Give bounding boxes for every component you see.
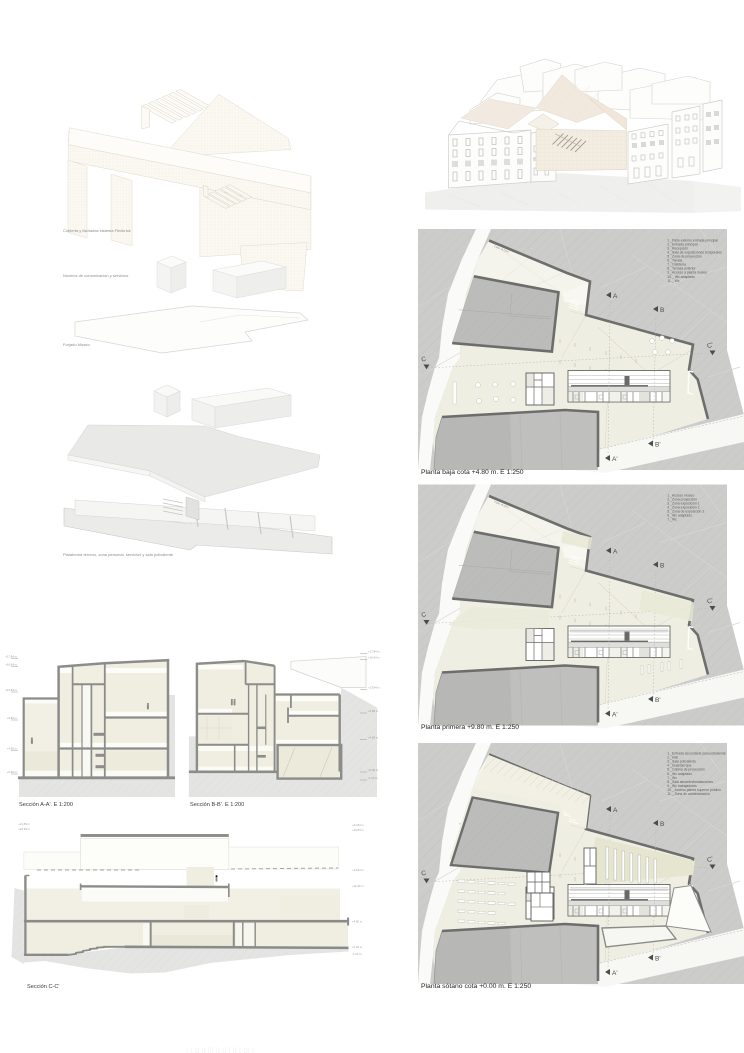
svg-text:Sección A-A'. E 1:200: Sección A-A'. E 1:200 — [19, 802, 73, 808]
svg-text:+4.80 m: +4.80 m — [352, 920, 363, 924]
svg-text:+20.84 m: +20.84 m — [352, 828, 364, 832]
svg-text:Planta baja cota +4.80 m. E 1:: Planta baja cota +4.80 m. E 1:250 — [421, 469, 524, 476]
svg-text:Núcleos de comunicación y serv: Núcleos de comunicación y servicios — [63, 273, 128, 278]
svg-text:+13.84 m: +13.84 m — [352, 868, 364, 872]
svg-text:+4.80 m: +4.80 m — [7, 747, 18, 751]
svg-text:11._ Wc: 11._ Wc — [667, 279, 679, 283]
svg-text:+11.80 m: +11.80 m — [352, 884, 364, 888]
svg-text:Planta sótano cota +0.00 m. E: Planta sótano cota +0.00 m. E 1:250 — [421, 983, 531, 990]
svg-text:+13.84 m: +13.84 m — [368, 686, 380, 690]
svg-text:Sección C-C': Sección C-C' — [27, 984, 59, 990]
svg-text:Planta primera +9.80 m. E 1:25: Planta primera +9.80 m. E 1:250 — [421, 724, 519, 731]
svg-text:-1.00 m: -1.00 m — [368, 776, 378, 780]
svg-text:+9.80 m: +9.80 m — [368, 709, 379, 713]
svg-text:+16.64 m: +16.64 m — [5, 663, 17, 667]
svg-text:+17.84 m: +17.84 m — [368, 650, 380, 654]
svg-text:+4.80 m: +4.80 m — [368, 736, 379, 740]
svg-text:7._Wc: 7._Wc — [667, 518, 677, 522]
svg-text:+9.80 m: +9.80 m — [7, 716, 18, 720]
svg-text:-1.00 m: -1.00 m — [352, 952, 362, 956]
svg-text:+20.84 m: +20.84 m — [18, 827, 30, 831]
svg-text:+0.00 m: +0.00 m — [352, 945, 363, 949]
svg-text:Sección B-B'. E 1:200: Sección B-B'. E 1:200 — [190, 802, 244, 808]
svg-text:+21.84 m: +21.84 m — [352, 823, 364, 827]
svg-text:+16.64 m: +16.64 m — [368, 656, 380, 660]
svg-text:+0.00 m: +0.00 m — [7, 770, 18, 774]
svg-text:Plataforma terreno, zona perso: Plataforma terreno, zona personal, servi… — [63, 552, 174, 557]
svg-text:+0.00 m: +0.00 m — [368, 768, 379, 772]
svg-text:Cubierta y fachadas sistema Fl: Cubierta y fachadas sistema Flexbrick — [63, 228, 131, 233]
svg-text:11._ Zona de administración: 11._ Zona de administración — [667, 792, 710, 796]
svg-text:+13.84 m: +13.84 m — [5, 688, 17, 692]
svg-text:I t d it ilt lt d l it: I t d it ilt lt d l it t bi t — [186, 1046, 255, 1053]
svg-text:+17.84 m: +17.84 m — [5, 655, 17, 659]
svg-text:Forjado Museo: Forjado Museo — [63, 342, 90, 347]
svg-text:+21.84 m: +21.84 m — [18, 822, 30, 826]
